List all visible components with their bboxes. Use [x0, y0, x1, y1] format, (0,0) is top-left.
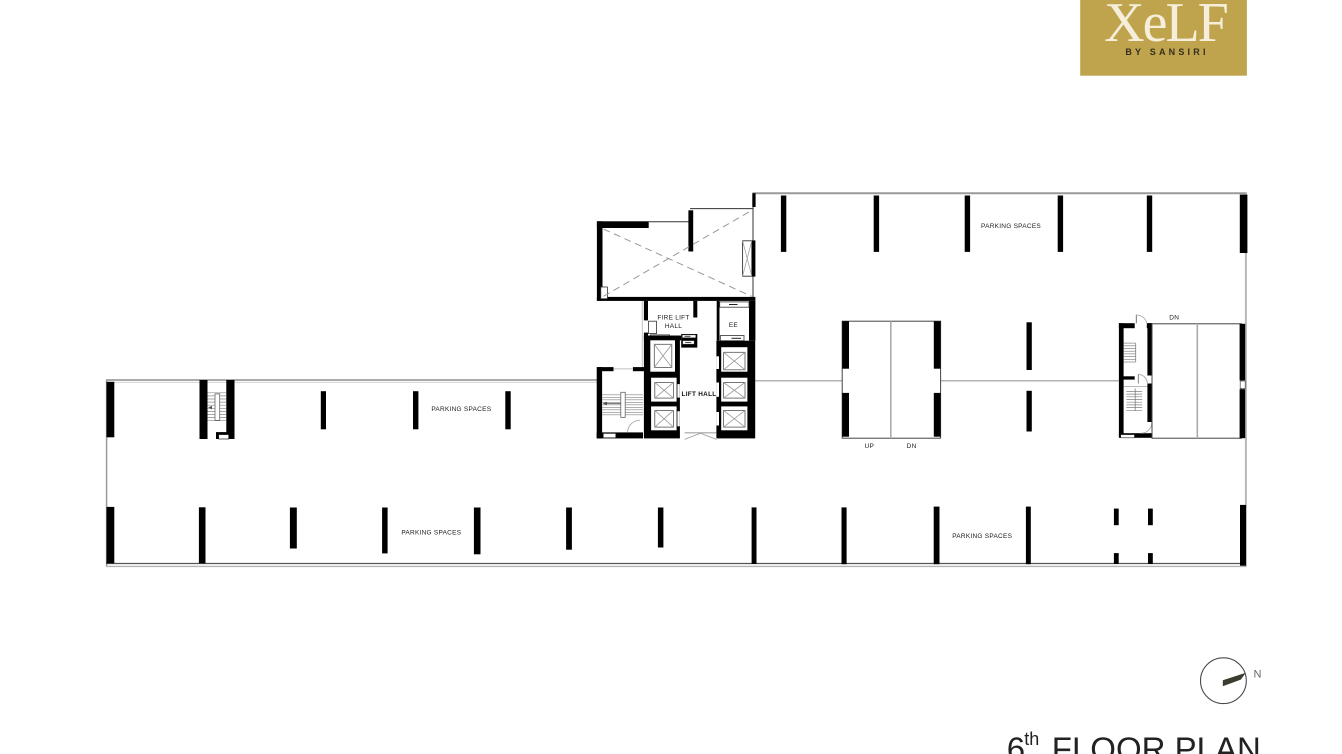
svg-text:UP: UP [865, 443, 875, 450]
svg-text:6: 6 [1007, 730, 1025, 754]
svg-text:EE: EE [729, 322, 739, 329]
svg-text:PARKING SPACES: PARKING SPACES [952, 533, 1012, 540]
svg-text:PARKING SPACES: PARKING SPACES [431, 406, 491, 413]
svg-text:DN: DN [907, 443, 917, 450]
svg-text:DN: DN [1169, 314, 1179, 321]
svg-text:LIFT HALL: LIFT HALL [682, 391, 717, 398]
svg-text:PARKING SPACES: PARKING SPACES [981, 223, 1041, 230]
svg-text:N: N [1254, 669, 1262, 681]
svg-text:th: th [1024, 729, 1039, 749]
svg-text:BY SANSIRI: BY SANSIRI [1125, 47, 1208, 57]
svg-text:FLOOR PLAN: FLOOR PLAN [1052, 730, 1261, 754]
svg-text:FIRE LIFT: FIRE LIFT [657, 315, 689, 322]
svg-text:XeLF: XeLF [1104, 0, 1228, 54]
svg-text:HALL: HALL [665, 323, 682, 330]
svg-text:PARKING SPACES: PARKING SPACES [401, 529, 461, 536]
